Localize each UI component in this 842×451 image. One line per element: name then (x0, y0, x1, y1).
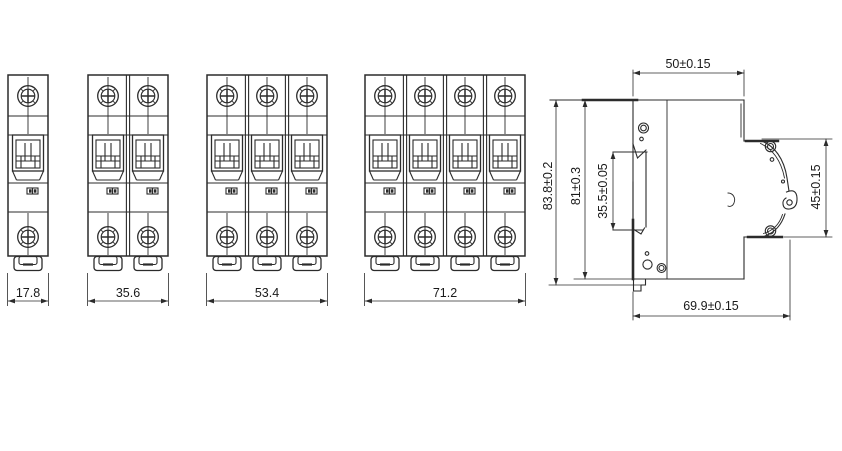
arrowhead-icon (824, 139, 829, 146)
side-toggle-pin (787, 200, 792, 205)
arrowhead-icon (783, 314, 790, 319)
side-view (549, 70, 832, 320)
mold-mark (728, 193, 735, 206)
width-dimension-label-1p: 17.8 (16, 286, 40, 300)
breaker-dimension-drawing: 17.8 35.6 53.4 71.2 (0, 0, 842, 451)
width-dimension-label-2p: 35.6 (116, 286, 140, 300)
arrowhead-icon (633, 71, 640, 76)
din-hook-notch (633, 144, 646, 158)
side-overall-height-label: 83.8±0.2 (541, 162, 555, 211)
arrowhead-icon (737, 71, 744, 76)
rivet-icon (659, 266, 664, 271)
width-dimension-label-4p: 71.2 (433, 286, 457, 300)
page: { "drawing": { "type": "technical-dimens… (0, 0, 842, 451)
front-view-1-pole (8, 75, 49, 306)
din-clip-tip (633, 228, 645, 234)
arrowhead-icon (554, 100, 559, 107)
arrowhead-icon (824, 230, 829, 237)
arrowhead-icon (633, 314, 640, 319)
rivet-icon (657, 264, 666, 273)
hole-icon (640, 137, 644, 141)
side-body-height-label: 81±0.3 (569, 167, 583, 205)
front-view-2-pole (88, 75, 169, 306)
hole-icon (643, 260, 652, 269)
arrowhead-icon (554, 278, 559, 285)
side-depth-label: 69.9±0.15 (683, 299, 739, 313)
dim-ext-lines-50 (633, 70, 744, 96)
arrowhead-icon (611, 152, 616, 159)
front-view-4-pole (365, 75, 526, 306)
side-width-label: 50±0.15 (665, 57, 710, 71)
hole-icon (645, 252, 649, 256)
side-front-face-height-label: 45±0.15 (809, 164, 823, 209)
hole-icon (770, 158, 774, 162)
rivet-icon (641, 125, 647, 131)
rivet-icon (639, 123, 649, 133)
front-view-3-pole (207, 75, 328, 306)
arrowhead-icon (611, 223, 616, 230)
width-dimension-label-3p: 53.4 (255, 286, 279, 300)
hole-icon (782, 180, 785, 183)
side-din-recess-label: 35.5±0.05 (596, 163, 610, 219)
arrowhead-icon (583, 272, 588, 279)
